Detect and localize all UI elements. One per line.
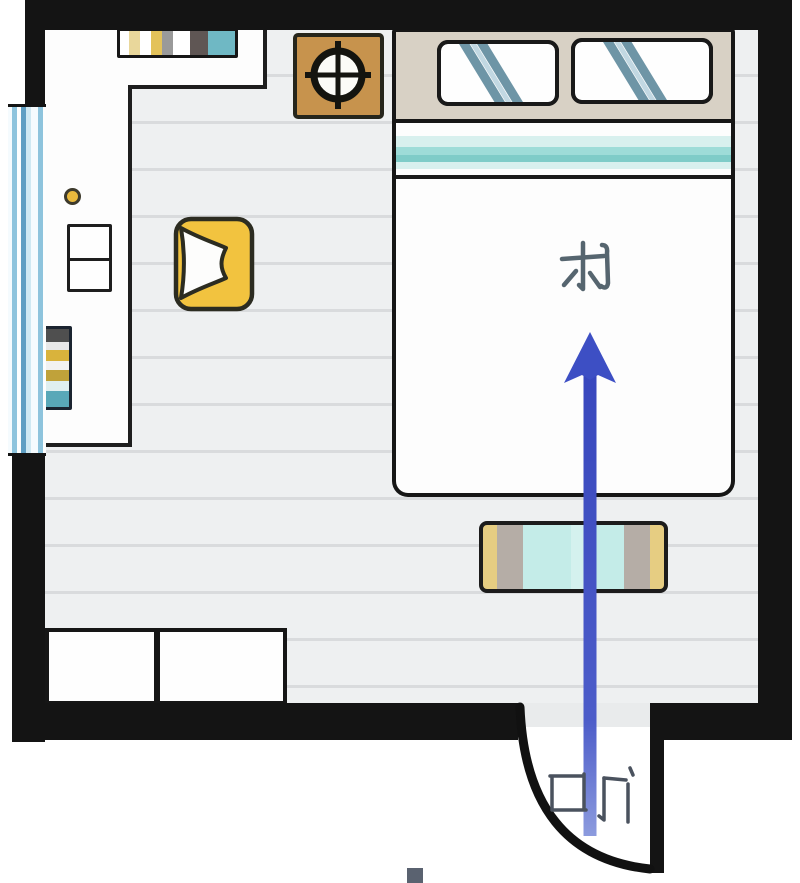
blanket-stripe	[396, 155, 731, 162]
wall-left-lower	[12, 456, 45, 742]
wall-bottom-right	[650, 703, 792, 740]
doorway-floor	[518, 703, 650, 727]
window	[8, 104, 46, 456]
counter-edge-line	[128, 85, 267, 89]
bottom-edge-marker	[407, 868, 423, 883]
door-knob-dot	[64, 188, 81, 205]
door-jamb	[650, 703, 664, 873]
wall-right	[758, 0, 792, 740]
blanket-stripe	[396, 162, 731, 169]
counter-edge-line	[128, 85, 132, 447]
white-cabinet	[67, 224, 112, 292]
blanket-stripe	[396, 147, 731, 155]
doorway-label: 口门	[542, 762, 648, 828]
foot-bench	[479, 521, 668, 593]
storage-box-left	[45, 628, 158, 705]
bed-direction-label: 东	[552, 233, 624, 317]
counter-edge-line	[263, 30, 267, 89]
storage-box-right	[156, 628, 287, 705]
counter-edge-line	[45, 443, 132, 447]
sheet-fold-line	[396, 175, 731, 179]
top-bookshelf	[117, 28, 238, 58]
cabinet-divider	[70, 258, 109, 261]
wall-bottom-left	[12, 703, 518, 740]
wall-top	[25, 0, 792, 30]
floor-plan: 东	[0, 0, 800, 883]
blanket-stripe	[396, 136, 731, 147]
wall-left-upper	[25, 0, 45, 108]
book-stack	[43, 326, 72, 410]
headboard	[392, 28, 735, 123]
